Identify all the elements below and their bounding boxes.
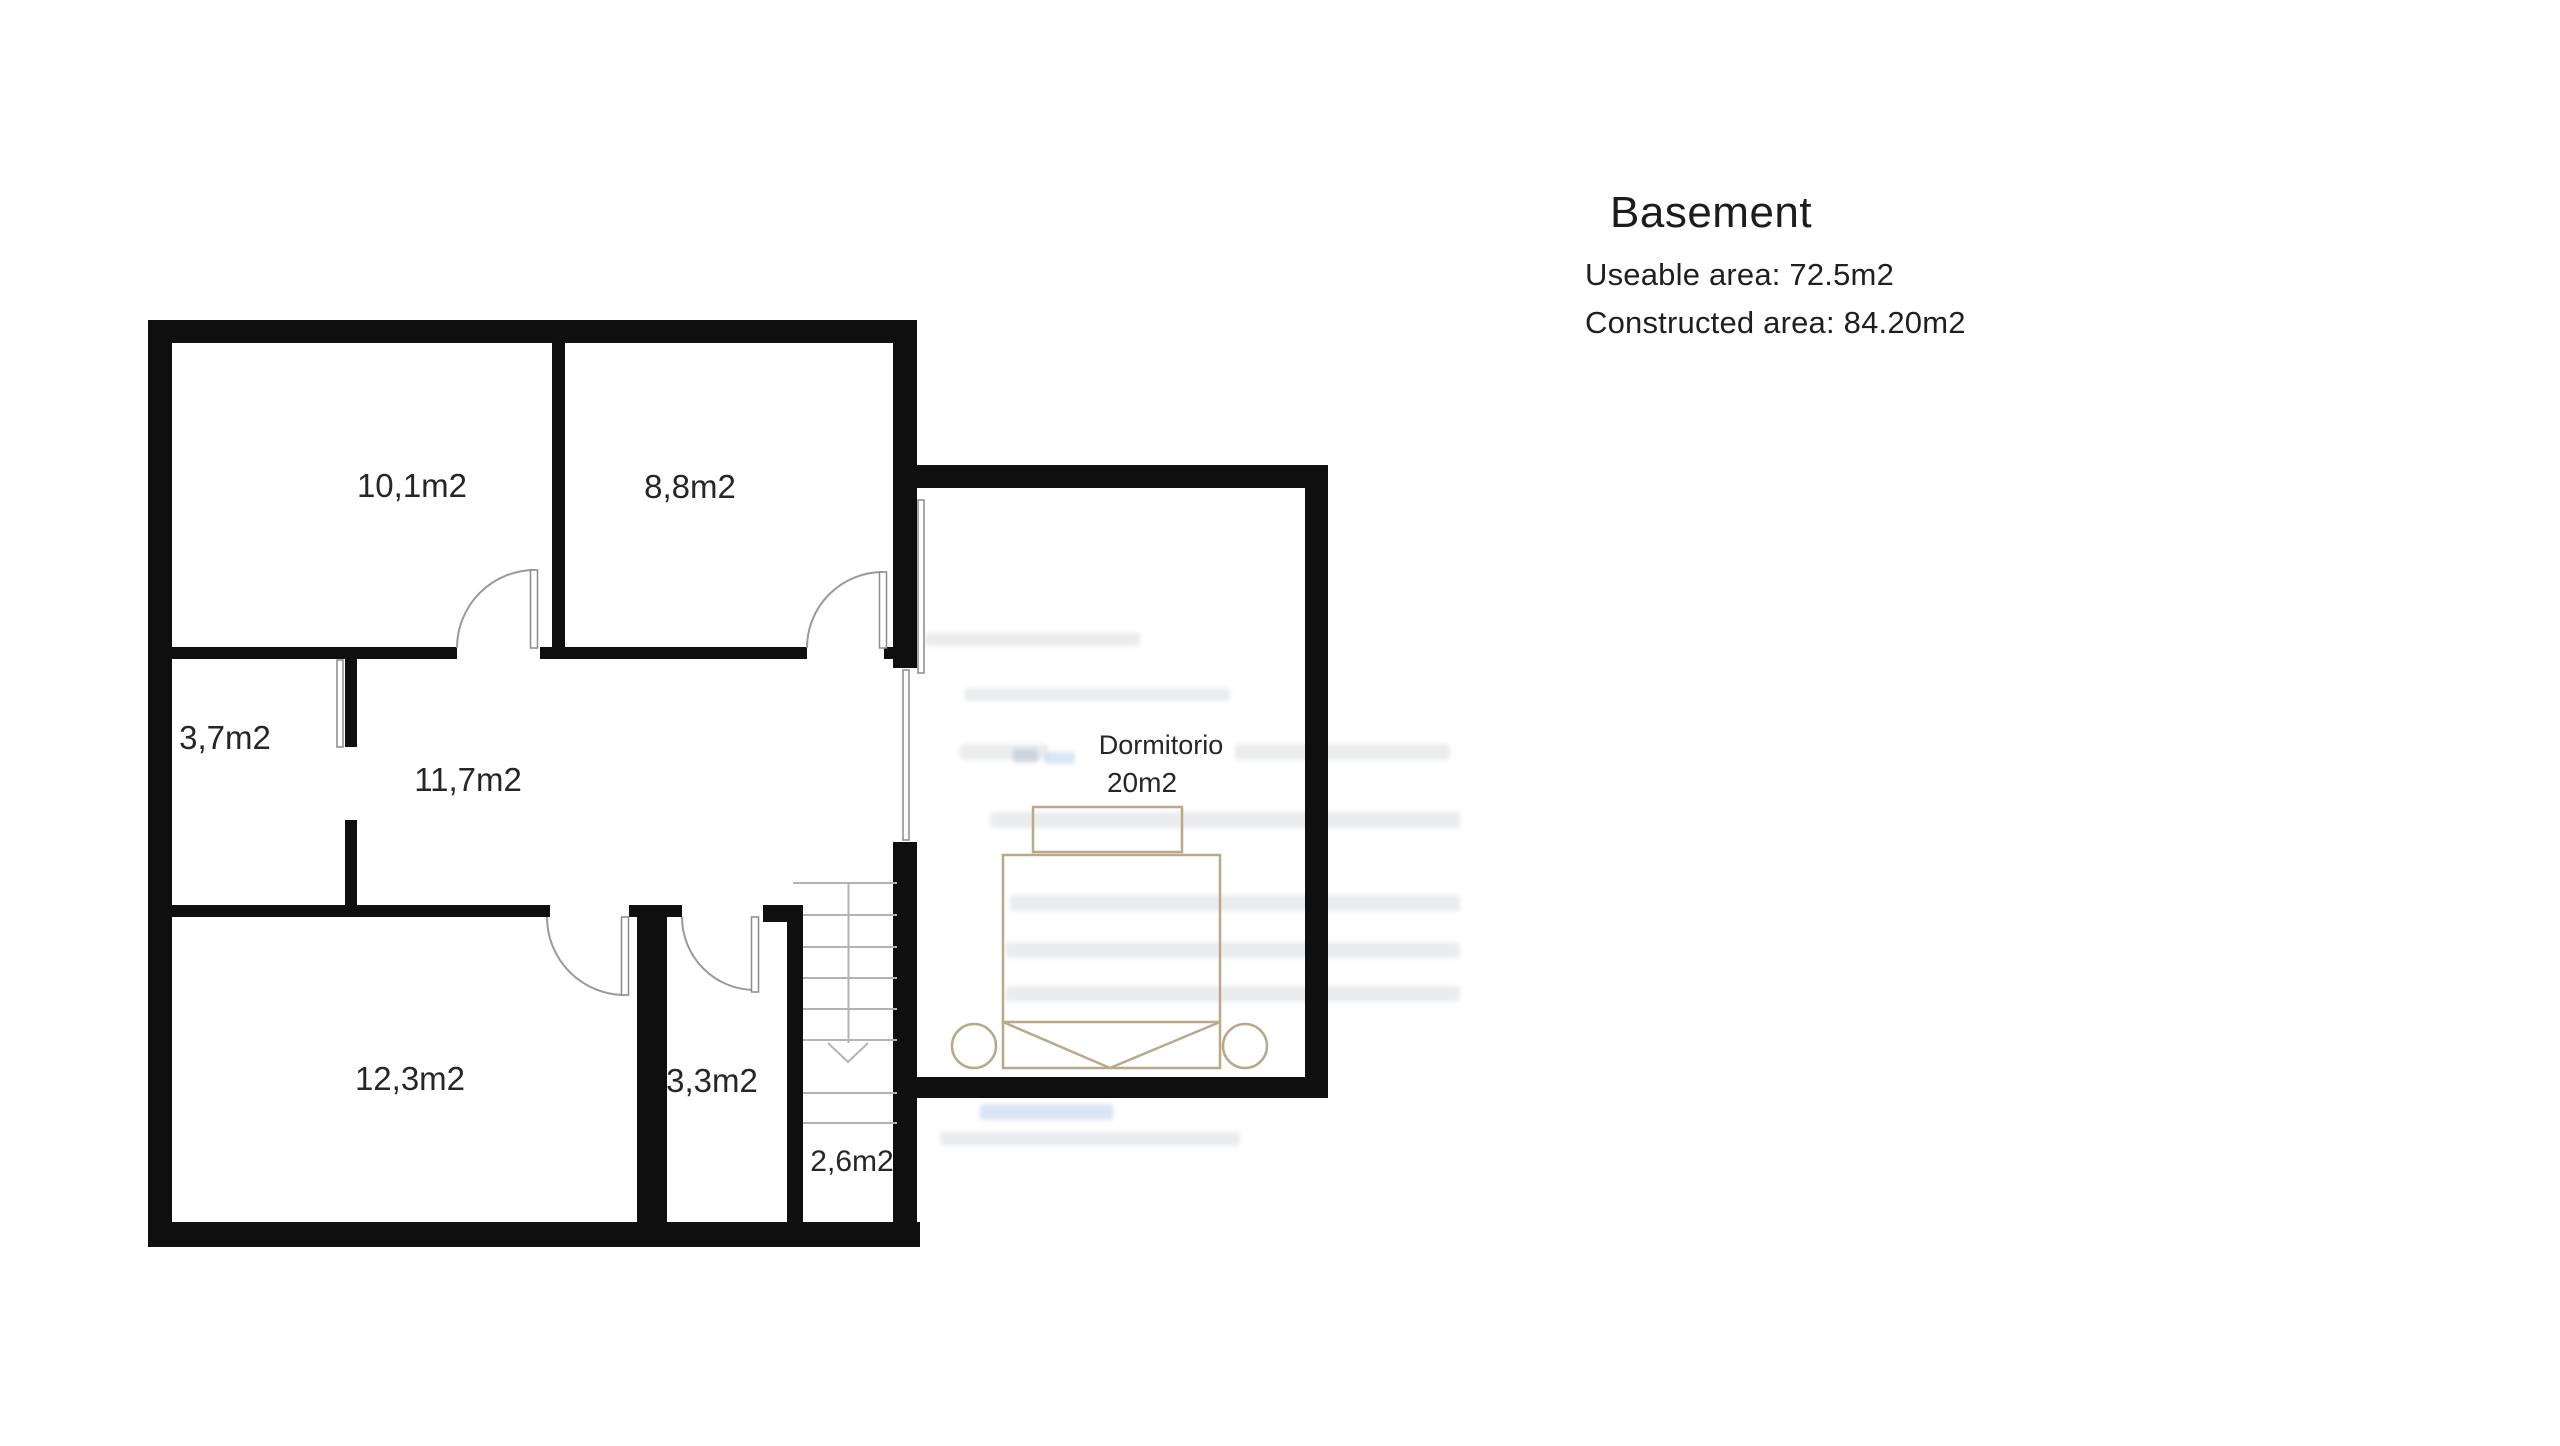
door-arc [682,917,755,990]
room-labels: 10,1m2 8,8m2 3,7m2 11,7m2 12,3m2 3,3m2 2… [179,467,1223,1178]
room-label-8-8: 8,8m2 [644,468,736,505]
wall-bottom [148,1222,920,1247]
room-label-12-3: 12,3m2 [355,1060,465,1097]
wall-stair-divider [787,917,803,1225]
room-label-2-6: 2,6m2 [810,1145,893,1178]
floor-plan: 10,1m2 8,8m2 3,7m2 11,7m2 12,3m2 3,3m2 2… [0,0,2560,1446]
wall-right-lower [893,842,917,1247]
bed-fold-diagonal [1003,1022,1110,1068]
wall-segment [148,905,550,917]
wall-segment [540,647,807,659]
wall-segment [884,647,917,659]
door-leaf [752,917,759,992]
room-label-10-1: 10,1m2 [357,467,467,504]
bedside-stool-right [1223,1024,1267,1068]
screenshot-canvas: 10,1m2 8,8m2 3,7m2 11,7m2 12,3m2 3,3m2 2… [0,0,2560,1446]
bed-symbol [952,807,1267,1068]
room-label-11-7: 11,7m2 [414,761,522,798]
room-label-dormitorio: Dormitorio [1099,730,1224,760]
door-arc [807,572,883,648]
wall-segment [148,647,457,659]
room-label-3-7: 3,7m2 [179,719,271,756]
door-leaf [531,570,538,648]
window-glass-line [903,670,909,840]
door-leaf [880,572,887,648]
wall-right-upper [893,320,917,668]
wall-left [148,320,172,1247]
wall-top [148,320,917,343]
wall-room-divider [637,905,667,1222]
stair-direction-arrow [828,1043,868,1062]
bed-fold-diagonal [1110,1022,1220,1068]
interior-walls [148,343,917,1225]
wall-annex-right [1305,465,1328,1098]
bed-headboard [1033,807,1182,852]
wall-stub-lower [345,820,357,917]
wall-annex-bottom [893,1077,1328,1098]
door-arc [547,917,625,995]
door-leaf [622,917,629,995]
wall-annex-top [917,465,1328,488]
wall-room-divider [552,343,565,659]
staircase [793,883,897,1123]
window-glass-line [337,660,343,747]
room-label-dormitorio-area: 20m2 [1107,767,1177,798]
wall-stub-upper [345,658,357,747]
room-label-3-3: 3,3m2 [666,1062,758,1099]
door-arc [457,570,535,648]
bedside-stool-left [952,1024,996,1068]
window-glass-line [918,500,924,673]
outer-walls [148,320,920,1247]
